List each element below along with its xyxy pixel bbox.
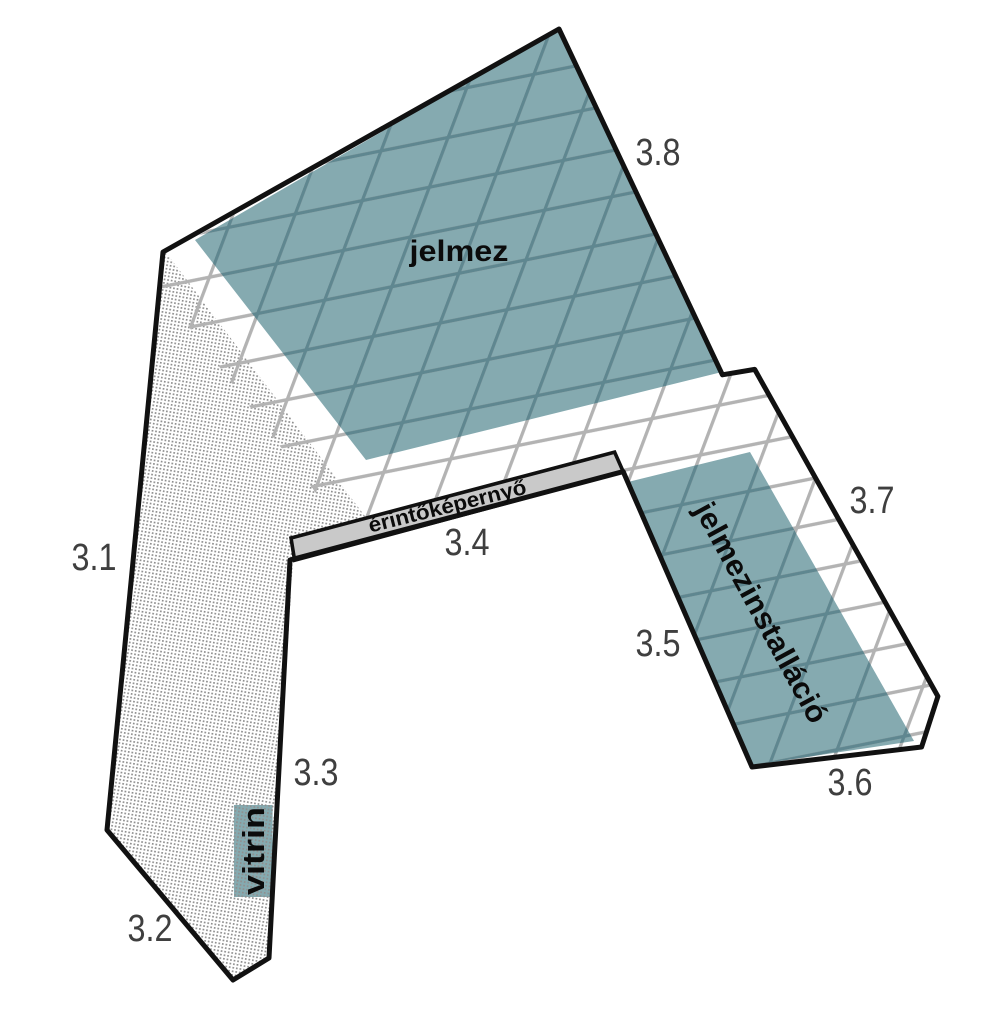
svg-text:3.4: 3.4 bbox=[445, 522, 490, 564]
svg-text:3.7: 3.7 bbox=[850, 480, 895, 522]
svg-text:vitrin: vitrin bbox=[236, 807, 271, 895]
svg-text:3.8: 3.8 bbox=[636, 132, 681, 174]
svg-text:3.1: 3.1 bbox=[72, 537, 117, 579]
svg-text:3.3: 3.3 bbox=[294, 752, 339, 794]
svg-text:3.2: 3.2 bbox=[128, 908, 173, 950]
svg-text:3.6: 3.6 bbox=[828, 762, 873, 804]
svg-text:3.5: 3.5 bbox=[636, 623, 681, 665]
svg-text:jelmez: jelmez bbox=[408, 235, 508, 268]
